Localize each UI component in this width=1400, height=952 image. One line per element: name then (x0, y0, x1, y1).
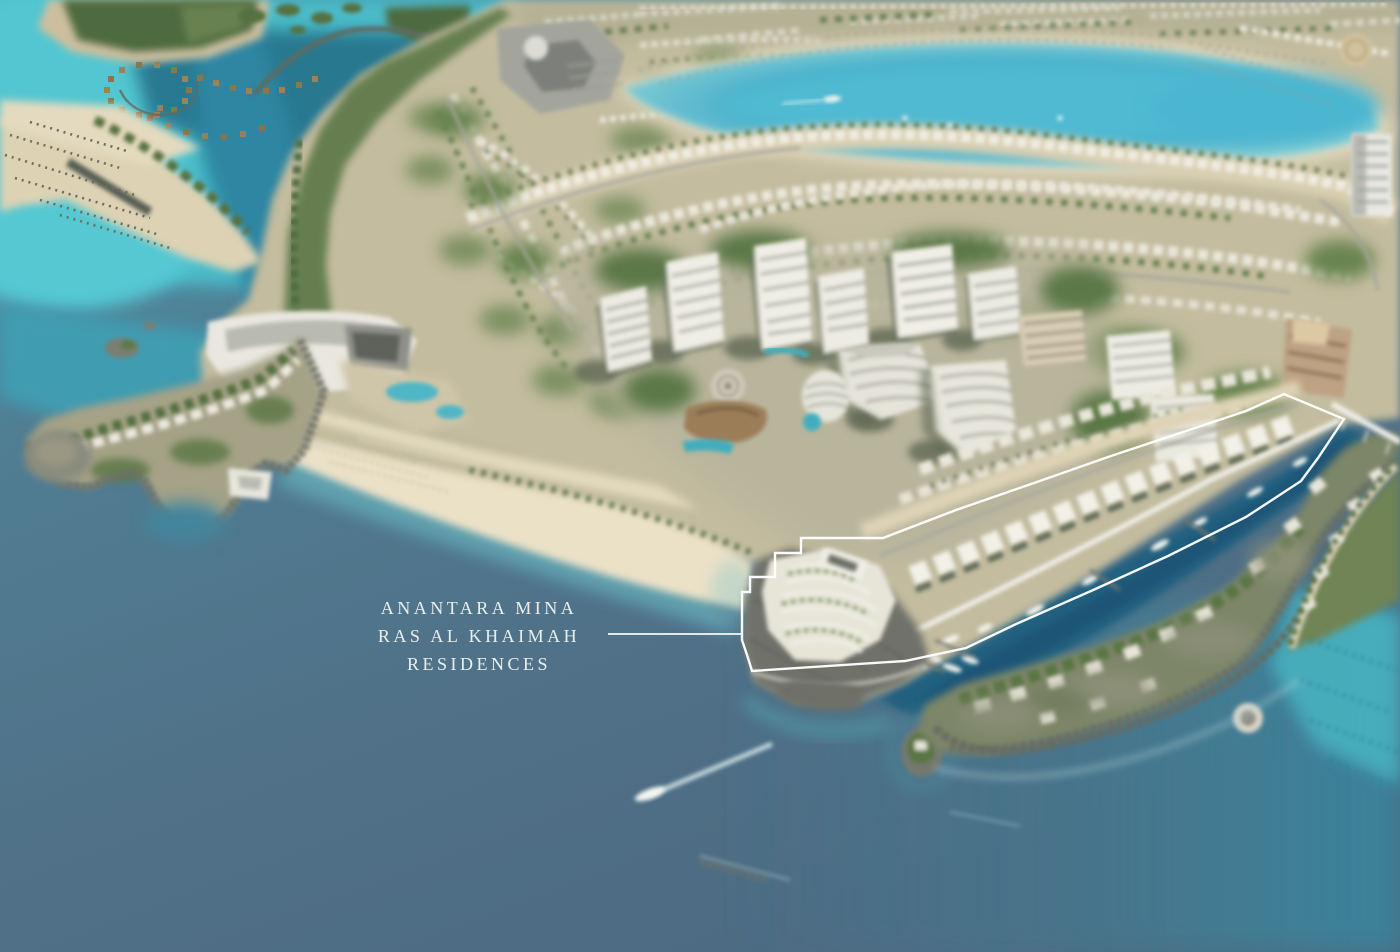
svg-text:RAS AL KHAIMAH: RAS AL KHAIMAH (378, 626, 580, 646)
svg-text:RESIDENCES: RESIDENCES (407, 654, 551, 674)
svg-text:ANANTARA MINA: ANANTARA MINA (381, 598, 578, 618)
